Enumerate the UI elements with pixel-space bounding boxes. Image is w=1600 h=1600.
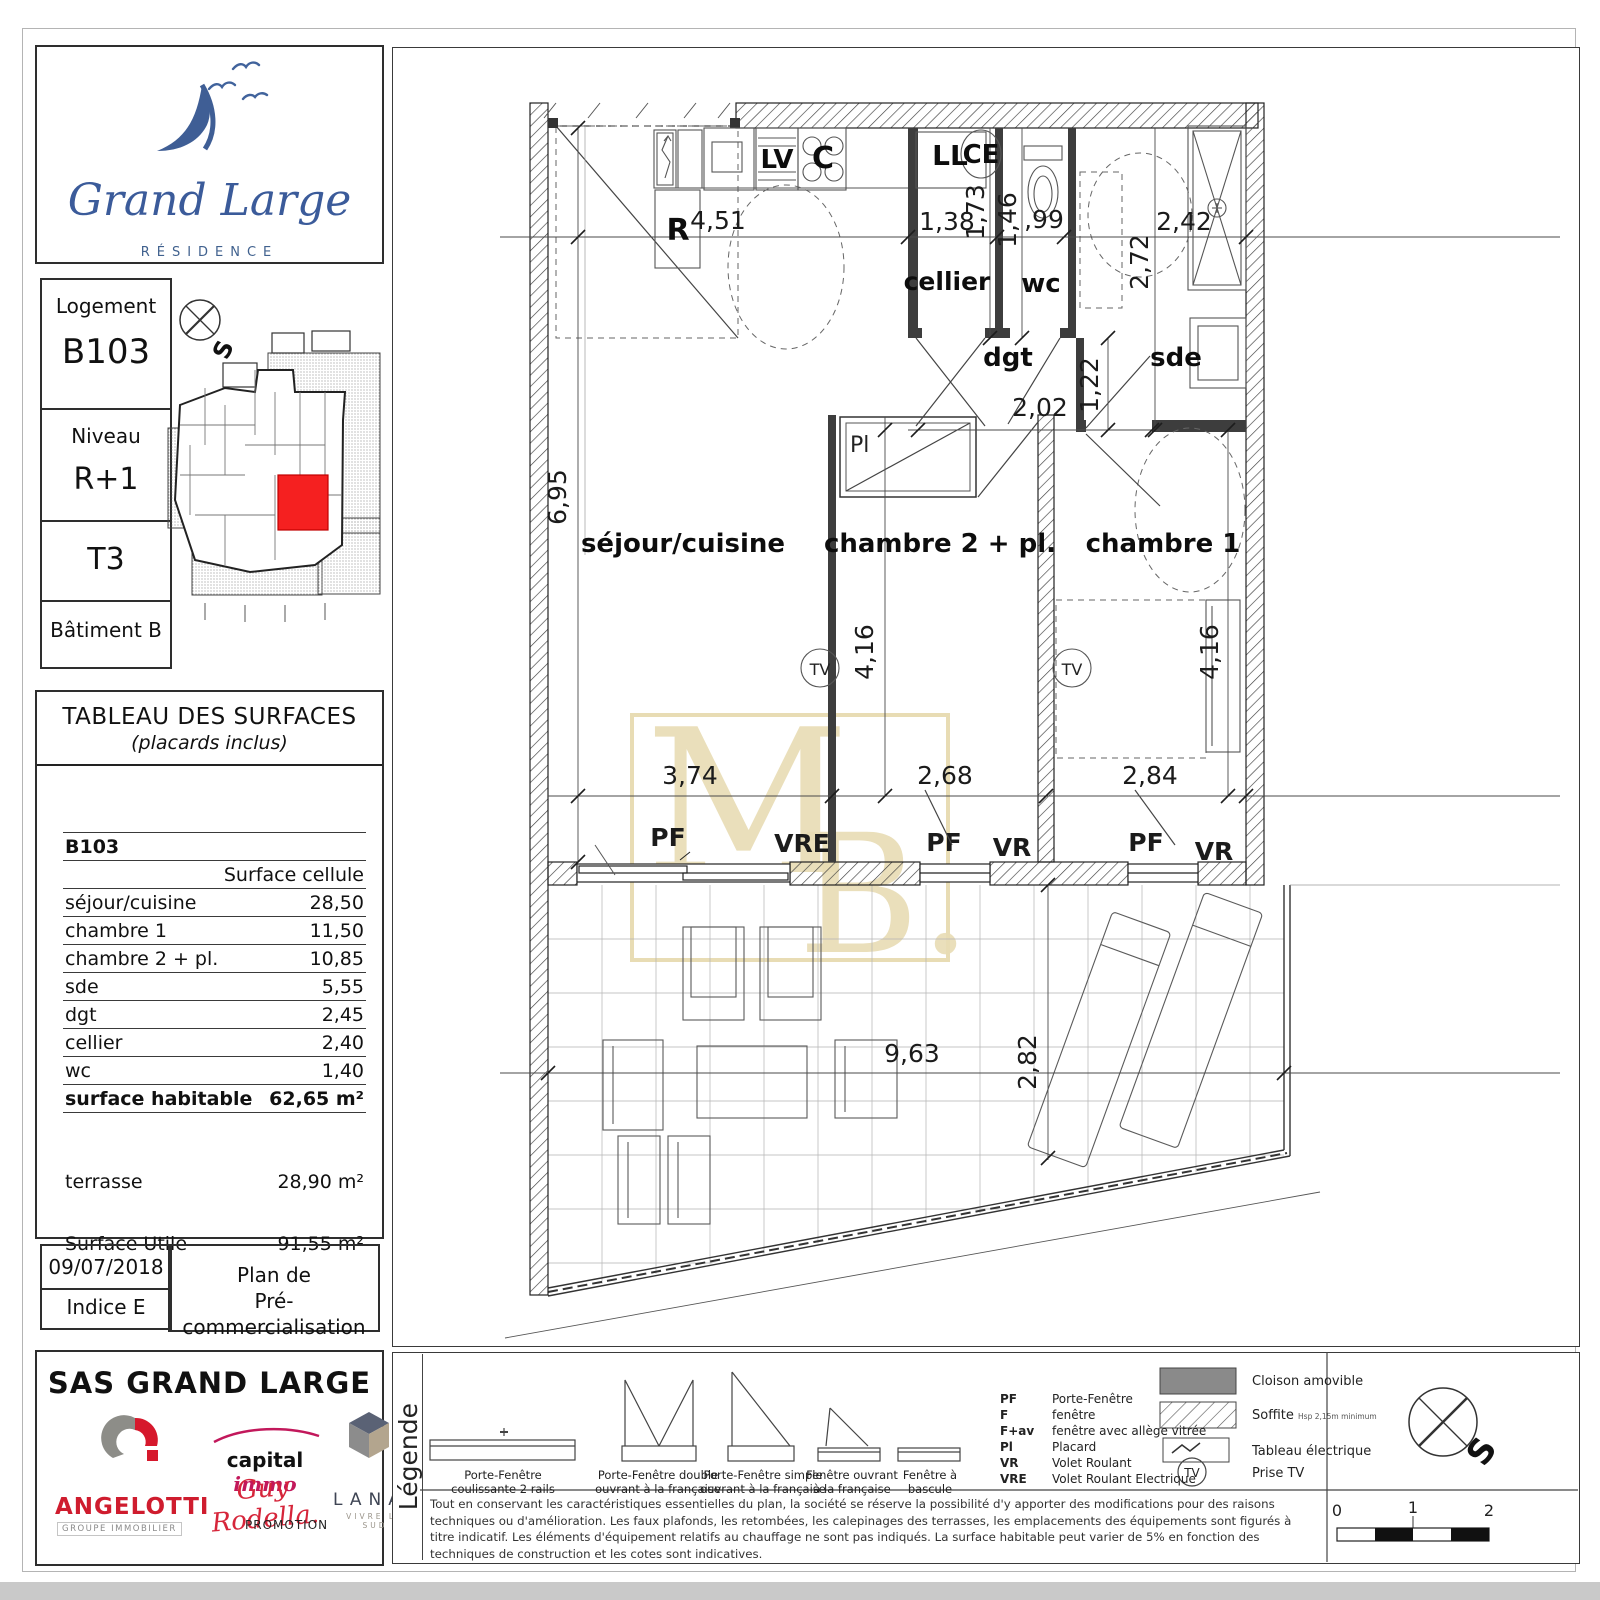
abbr-key: F+av: [1000, 1424, 1044, 1438]
abbr-value: Porte-Fenêtre: [1052, 1392, 1272, 1406]
col-header: Surface cellule: [224, 863, 364, 887]
dim-sejour-bottom: 3,74: [662, 761, 718, 790]
logement-cell: Logement B103: [40, 278, 172, 412]
promotion-label: PROMOTION: [245, 1518, 328, 1532]
symbol-label: Cloison amovible: [1252, 1374, 1432, 1389]
minimap-building-outline: [175, 370, 345, 572]
label-vre-sejour: VRE: [774, 829, 830, 858]
abbr-key: VR: [1000, 1456, 1044, 1470]
abbr-key: F: [1000, 1408, 1044, 1422]
table-row: chambre 2 + pl.10,85: [63, 945, 366, 973]
label-vr-ch2: VR: [993, 833, 1032, 862]
dim-ch2-bottom: 2,68: [917, 761, 973, 790]
residence-subtitle: RÉSIDENCE: [37, 245, 382, 260]
room-sejour: séjour/cuisine: [581, 529, 785, 559]
abbr-value: Placard: [1052, 1440, 1272, 1454]
unit-id: B103: [65, 835, 119, 859]
dim-wc-side: 1,46: [993, 192, 1022, 248]
company-title: SAS GRAND LARGE: [37, 1366, 382, 1400]
room-chambre1: chambre 1: [1086, 529, 1241, 559]
surfaces-subtitle: (placards inclus): [37, 732, 382, 754]
residence-logo-box: Grand Large RÉSIDENCE: [35, 45, 384, 264]
legend-window-label: Fenêtre àbascule: [885, 1468, 975, 1496]
legend-window-symbols: [430, 1372, 960, 1461]
table-row: B103: [63, 832, 366, 861]
dim-dgt-top: 2,02: [1012, 393, 1068, 422]
abbr-value: Volet Roulant Electrique: [1052, 1472, 1272, 1486]
angelotti-subtitle: GROUPE IMMOBILIER: [57, 1522, 182, 1536]
revision-block: 09/07/2018 Indice E Plan de Pré-commerci…: [35, 1240, 380, 1332]
revision-date: 09/07/2018: [40, 1244, 172, 1290]
abbr-key: VRE: [1000, 1472, 1044, 1486]
scale-0: 0: [1332, 1501, 1342, 1520]
dim-terrace-side: 2,82: [1013, 1034, 1042, 1090]
legend-compass-icon: S: [1409, 1388, 1505, 1473]
abbr-value: Volet Roulant: [1052, 1456, 1272, 1470]
dim-wc-top: ,99: [1024, 205, 1064, 234]
abbr-value: fenêtre avec allège vitrée: [1052, 1424, 1272, 1438]
dim-ch1-side: 4,16: [1195, 624, 1224, 680]
sun-lounger: [1119, 892, 1263, 1148]
capitalimmo-arc-icon: [209, 1424, 324, 1446]
lanat-cube-icon: [341, 1410, 397, 1462]
cloison-symbol: [1160, 1368, 1236, 1394]
surfaces-table: B103 Surface cellule séjour/cuisine28,50…: [63, 832, 366, 1113]
legend-disclaimer: Tout en conservant les caractéristiques …: [430, 1496, 1318, 1562]
floor-plan: M B.: [390, 45, 1580, 1345]
label-vr-ch1: VR: [1195, 837, 1234, 866]
table-row: séjour/cuisine28,50: [63, 889, 366, 917]
minimap-compass-icon: S: [180, 300, 240, 364]
table-row: wc1,40: [63, 1057, 366, 1085]
dim-dgt-side: 1,22: [1075, 357, 1104, 413]
large-bird-icon: [157, 85, 210, 151]
dim-sejour-side: 6,95: [543, 469, 572, 525]
table-header-row: Surface cellule: [63, 861, 366, 889]
surfaces-title: TABLEAU DES SURFACES: [37, 704, 382, 730]
dim-terrace-bottom: 9,63: [884, 1039, 940, 1068]
soffite-note: Hsp 2,15m minimum: [1298, 1412, 1377, 1421]
label-hob: C: [812, 141, 834, 176]
tv-outlet-label: TV: [809, 660, 831, 679]
scale-bar: 0 1 2: [1332, 1498, 1494, 1541]
symbol-label: Prise TV: [1252, 1466, 1432, 1481]
entry-zone: [548, 118, 740, 555]
tv-outlet-label: TV: [1061, 660, 1083, 679]
symbol-label: Soffite Hsp 2,15m minimum: [1252, 1408, 1432, 1423]
minimap-unit-highlight: [278, 475, 328, 530]
label-placard: Pl: [850, 433, 869, 458]
minimap-compass-south: S: [207, 336, 240, 364]
table-row: dgt2,45: [63, 1001, 366, 1029]
legend-compass-south: S: [1459, 1430, 1506, 1473]
room-dgt: dgt: [983, 343, 1033, 373]
electrical-panel-icon: [662, 136, 671, 178]
abbr-key: PF: [1000, 1392, 1044, 1406]
site-minimap: S: [165, 275, 385, 645]
label-waterheater: CE: [963, 140, 1000, 170]
room-wc: wc: [1021, 269, 1060, 299]
birds-icon: [37, 47, 382, 177]
dim-sejour-top: 4,51: [690, 206, 746, 235]
table-row: cellier2,40: [63, 1029, 366, 1057]
minimap-ticks: [205, 603, 325, 622]
plan-type-cell: Plan de Pré-commercialisation: [168, 1244, 380, 1332]
type-cell: T3: [40, 520, 172, 604]
surfaces-divider: [37, 764, 382, 766]
abbr-value: fenêtre: [1052, 1408, 1272, 1422]
label-pf-ch2: PF: [926, 828, 961, 857]
table-row: chambre 111,50: [63, 917, 366, 945]
label-pf-ch1: PF: [1128, 828, 1163, 857]
type-value: T3: [42, 542, 170, 577]
revision-indice: Indice E: [40, 1286, 172, 1330]
room-sde: sde: [1150, 343, 1202, 373]
sun-lounger: [1027, 912, 1171, 1168]
surfaces-panel: TABLEAU DES SURFACES (placards inclus) B…: [35, 690, 384, 1239]
residence-name: Grand Large: [37, 175, 382, 226]
room-chambre2: chambre 2 + pl.: [824, 529, 1056, 559]
abbr-key: Pl: [1000, 1440, 1044, 1454]
niveau-value: R+1: [42, 462, 170, 497]
batiment-value: Bâtiment B: [42, 618, 170, 642]
room-cellier: cellier: [904, 267, 991, 296]
legend-window-label: Porte-Fenêtrecoulissante 2 rails: [428, 1468, 578, 1496]
dim-sde-side: 2,72: [1125, 234, 1154, 290]
scale-2: 2: [1484, 1501, 1494, 1520]
dim-ch2-side: 4,16: [850, 624, 879, 680]
company-panel: SAS GRAND LARGE ANGELOTTI GROUPE IMMOBIL…: [35, 1350, 384, 1566]
scale-1: 1: [1408, 1498, 1418, 1517]
table-total-row: surface habitable62,65 m²: [63, 1085, 366, 1113]
dim-ch1-bottom: 2,84: [1122, 761, 1178, 790]
batiment-cell: Bâtiment B: [40, 600, 172, 669]
table-row: terrasse28,90 m²: [63, 1171, 366, 1193]
niveau-label: Niveau: [42, 424, 170, 448]
logement-label: Logement: [42, 294, 170, 318]
table-row: sde5,55: [63, 973, 366, 1001]
label-pf-sejour: PF: [650, 823, 685, 852]
niveau-cell: Niveau R+1: [40, 408, 172, 524]
toilet: [1024, 146, 1062, 160]
symbol-label: Tableau électrique: [1252, 1444, 1432, 1459]
bottom-strip: [0, 1582, 1600, 1600]
dim-cellier-side: 1,73: [961, 184, 990, 240]
logement-value: B103: [42, 332, 170, 372]
label-fridge: R: [666, 213, 689, 248]
dim-sde-top: 2,42: [1156, 207, 1212, 236]
label-dishwasher: LV: [760, 145, 793, 175]
angelotti-logo-icon: [99, 1410, 171, 1472]
